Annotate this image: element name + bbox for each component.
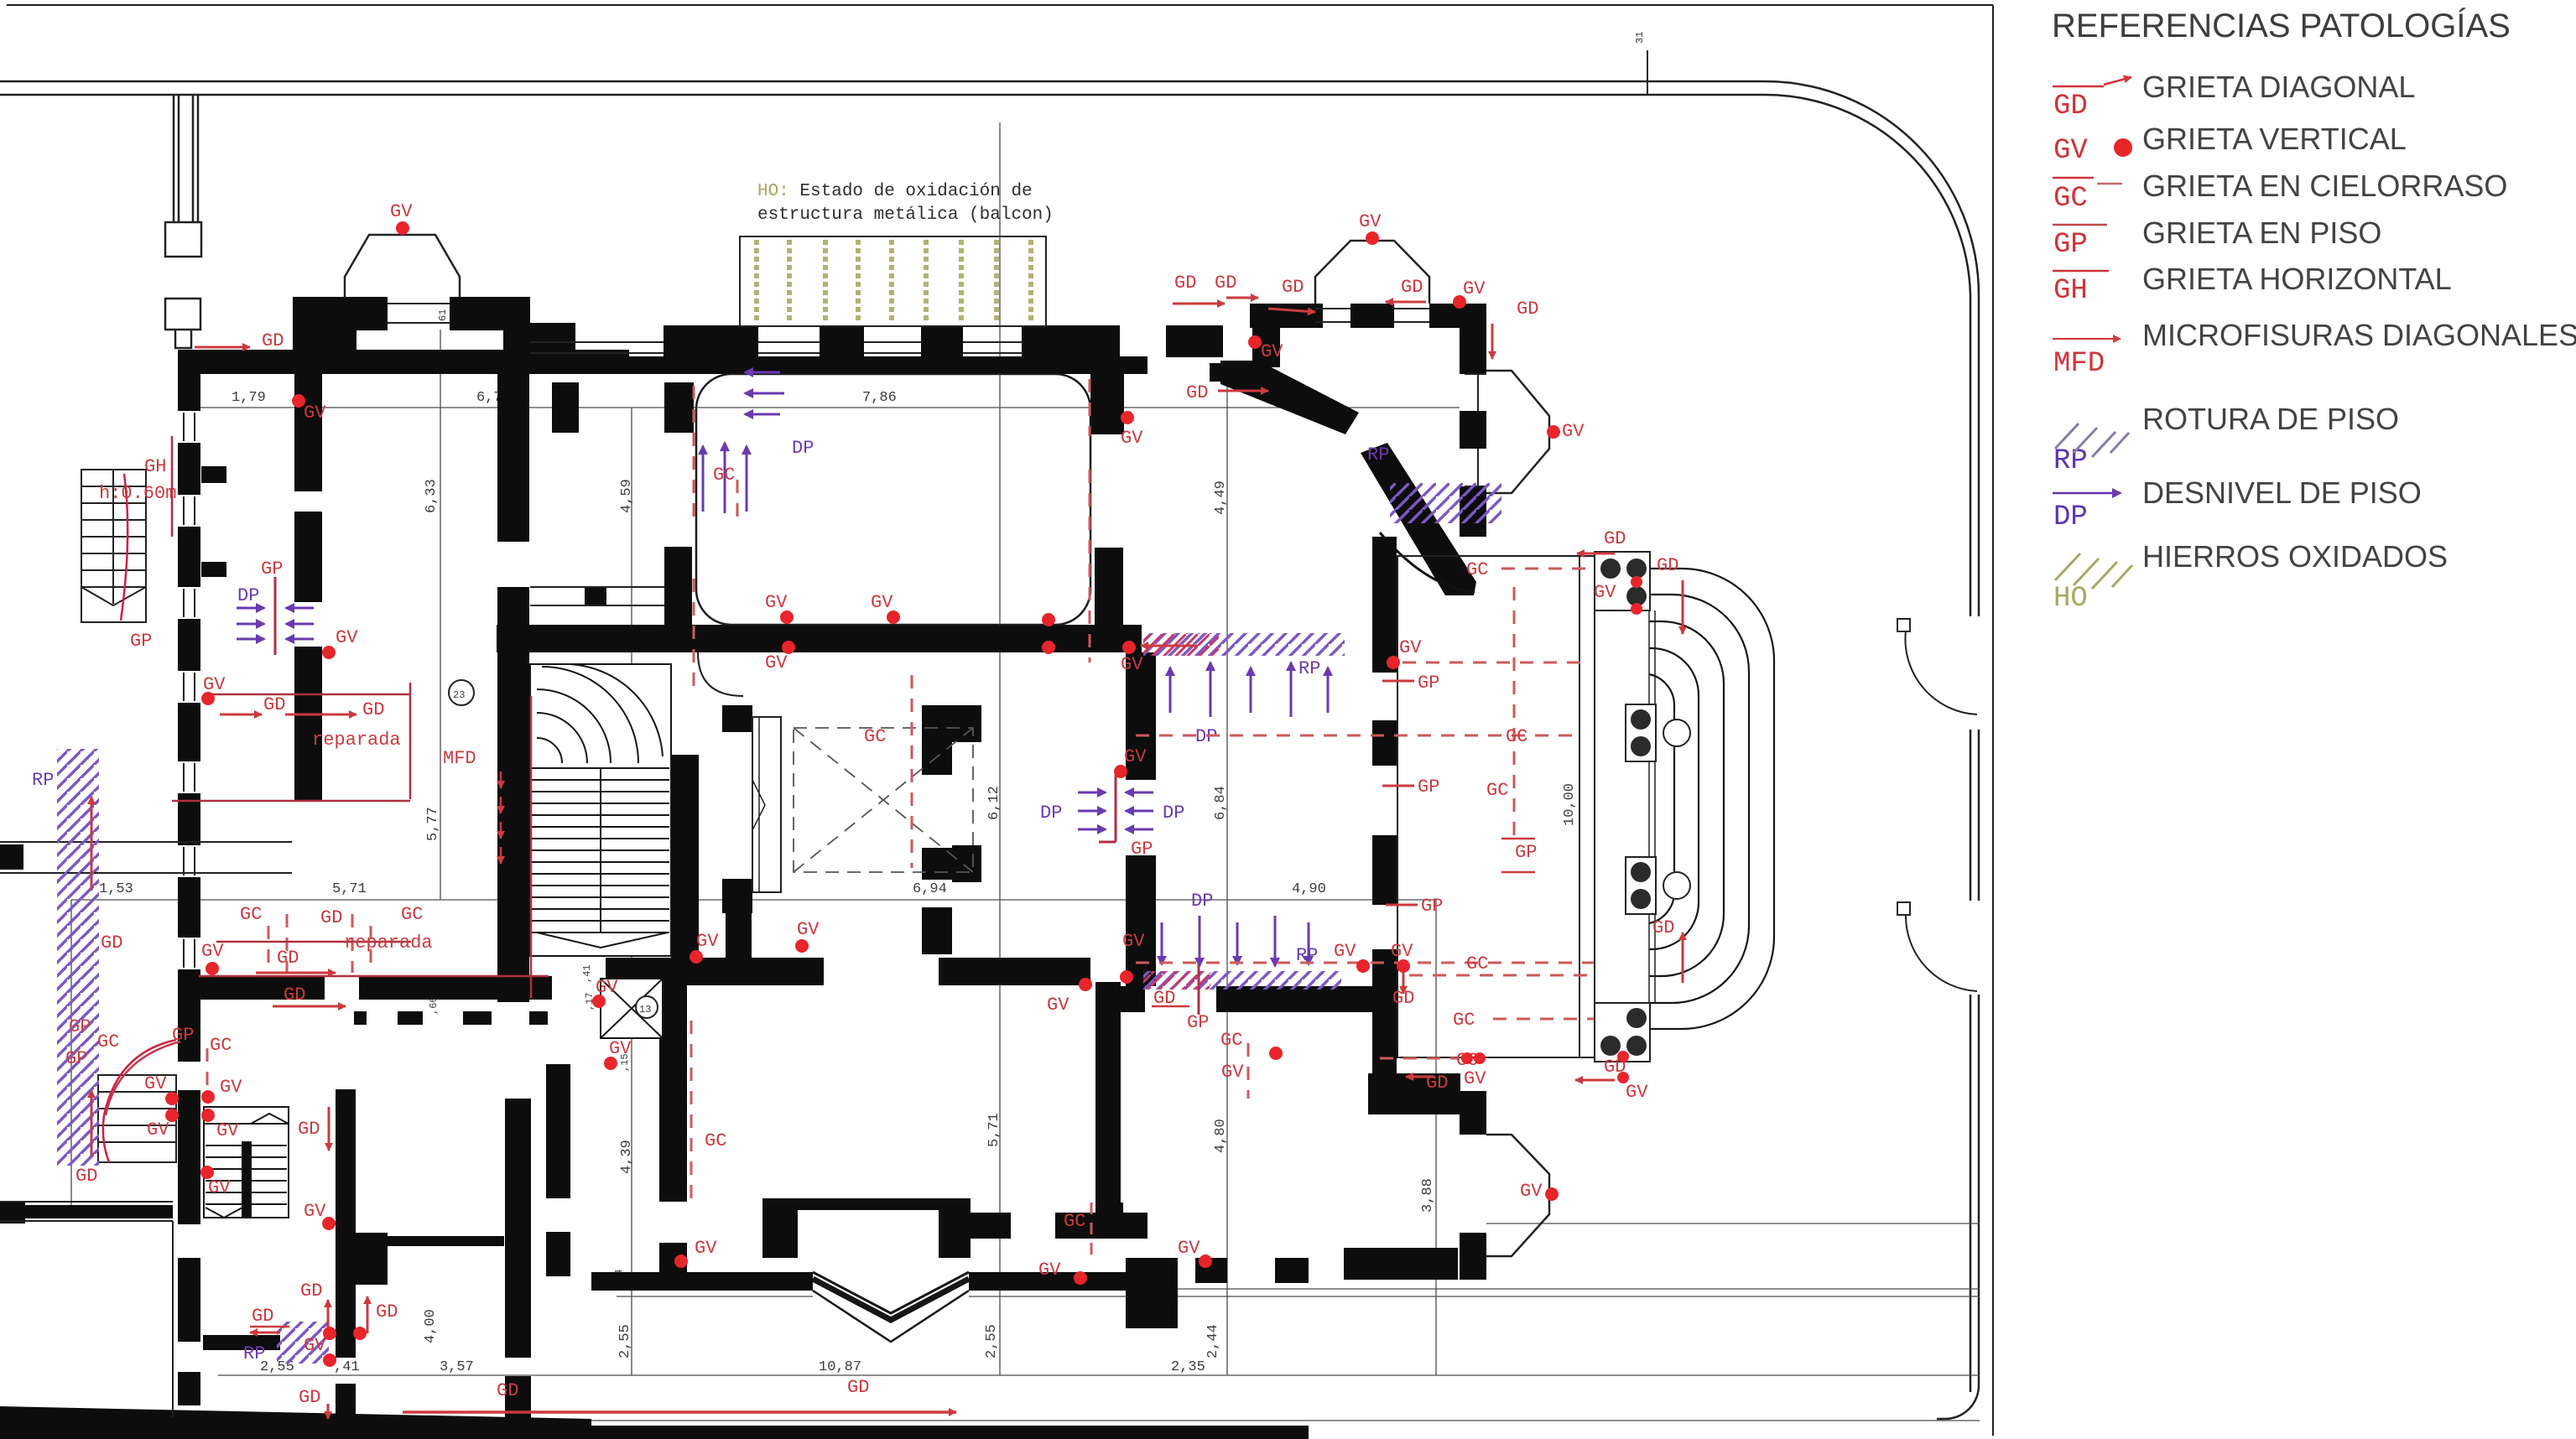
svg-text:GP: GP <box>1418 777 1439 797</box>
svg-text:GD: GD <box>2053 91 2088 122</box>
svg-text:31: 31 <box>1634 32 1646 44</box>
svg-text:4,39: 4,39 <box>619 1140 635 1174</box>
svg-text:GC: GC <box>864 726 886 747</box>
svg-text:GV: GV <box>2053 135 2088 167</box>
svg-text:GD: GD <box>1215 273 1236 294</box>
svg-text:GH: GH <box>2053 275 2088 307</box>
svg-text:RP: RP <box>1298 658 1320 679</box>
svg-text:DP: DP <box>792 438 814 459</box>
svg-text:GC: GC <box>210 1035 232 1056</box>
svg-text:GP: GP <box>2053 229 2088 261</box>
svg-text:GV: GV <box>208 1177 231 1198</box>
svg-text:10,87: 10,87 <box>819 1359 861 1375</box>
svg-text:GC: GC <box>713 465 735 486</box>
svg-text:GD: GD <box>1282 277 1304 298</box>
svg-text:GC: GC <box>1453 1010 1475 1031</box>
svg-text:GD: GD <box>1604 528 1626 549</box>
svg-text:GV: GV <box>696 931 719 952</box>
svg-text:GD: GD <box>497 1380 518 1401</box>
svg-text:4,59: 4,59 <box>619 479 635 513</box>
svg-text:GV: GV <box>1047 995 1069 1016</box>
svg-text:GC: GC <box>401 904 423 925</box>
svg-text:DP: DP <box>1191 891 1213 912</box>
svg-text:GD: GD <box>1174 273 1196 294</box>
svg-text:GV: GV <box>1221 1062 1244 1083</box>
svg-text:GD: GD <box>101 932 122 953</box>
svg-text:GV: GV <box>216 1120 239 1141</box>
svg-text:GV: GV <box>1261 341 1283 362</box>
svg-text:GC: GC <box>97 1031 119 1052</box>
svg-text:GV: GV <box>1626 1082 1648 1103</box>
svg-text:61: 61 <box>437 309 449 321</box>
svg-text:GV: GV <box>1124 746 1147 767</box>
svg-text:GC: GC <box>1064 1211 1085 1232</box>
svg-text:GV: GV <box>304 1201 326 1222</box>
svg-text:GV: GV <box>695 1238 717 1259</box>
svg-text:HO: Estado de oxidación de: HO: Estado de oxidación de <box>757 182 1033 201</box>
svg-text:GV: GV <box>1391 941 1413 962</box>
svg-text:4,80: 4,80 <box>1213 1119 1229 1153</box>
svg-text:GV: GV <box>1122 931 1145 952</box>
svg-text:GH: GH <box>144 456 166 477</box>
svg-text:DP: DP <box>2053 501 2088 533</box>
svg-text:GP: GP <box>1131 839 1153 860</box>
svg-text:h:0.60m: h:0.60m <box>99 483 176 504</box>
svg-text:3,57: 3,57 <box>440 1359 474 1375</box>
svg-text:RP: RP <box>1367 444 1389 465</box>
svg-text:GV: GV <box>1038 1260 1061 1281</box>
svg-text:23: 23 <box>453 689 465 701</box>
svg-text:GC: GC <box>1486 780 1508 801</box>
svg-text:MICROFISURAS DIAGONALES: MICROFISURAS DIAGONALES <box>2142 318 2576 352</box>
svg-text:GD: GD <box>299 1387 320 1408</box>
svg-text:GV: GV <box>1334 941 1356 962</box>
svg-text:GV: GV <box>1520 1181 1543 1202</box>
svg-text:GC: GC <box>705 1130 726 1151</box>
svg-text:reparada: reparada <box>344 932 433 953</box>
svg-text:GP: GP <box>261 558 283 579</box>
svg-text:4,49: 4,49 <box>1213 481 1229 515</box>
svg-text:RP: RP <box>32 770 54 791</box>
svg-text:HIERROS OXIDADOS: HIERROS OXIDADOS <box>2142 539 2448 574</box>
svg-text:REFERENCIAS PATOLOGÍAS: REFERENCIAS PATOLOGÍAS <box>2052 7 2511 44</box>
svg-text:2,35: 2,35 <box>1171 1359 1205 1375</box>
svg-text:reparada: reparada <box>312 730 401 751</box>
svg-text:GV: GV <box>304 1335 326 1356</box>
svg-text:GD: GD <box>362 699 384 720</box>
svg-text:RP: RP <box>2053 445 2088 477</box>
svg-text:3,88: 3,88 <box>1420 1178 1436 1213</box>
svg-text:4,90: 4,90 <box>1292 881 1326 897</box>
svg-text:GD: GD <box>263 694 285 715</box>
svg-text:,41: ,41 <box>334 1359 360 1375</box>
svg-text:GC: GC <box>1466 559 1488 580</box>
svg-text:RP: RP <box>243 1343 265 1364</box>
svg-text:GRIETA EN CIELORRASO: GRIETA EN CIELORRASO <box>2142 169 2507 203</box>
svg-text:GP: GP <box>1515 842 1537 863</box>
svg-text:GC: GC <box>1466 953 1488 974</box>
svg-text:MFD: MFD <box>443 748 476 769</box>
svg-text:GV: GV <box>1359 211 1382 232</box>
svg-text:5,71: 5,71 <box>332 881 367 897</box>
svg-text:1,79: 1,79 <box>232 390 266 406</box>
svg-text:GD: GD <box>376 1301 398 1322</box>
svg-text:GP: GP <box>1187 1012 1209 1033</box>
svg-text:GV: GV <box>765 592 788 613</box>
svg-text:5,77: 5,77 <box>425 807 441 841</box>
svg-text:GD: GD <box>300 1281 322 1301</box>
svg-text:GV: GV <box>1562 421 1585 442</box>
svg-text:DESNIVEL DE PISO: DESNIVEL DE PISO <box>2142 475 2422 510</box>
svg-text:,41: ,41 <box>581 964 593 983</box>
svg-text:GD: GD <box>1517 299 1538 319</box>
svg-text:GD: GD <box>262 330 284 351</box>
svg-text:6,94: 6,94 <box>913 881 947 897</box>
svg-text:13: 13 <box>639 1004 651 1016</box>
svg-text:GD: GD <box>277 948 299 969</box>
svg-text:2,44: 2,44 <box>1205 1324 1221 1358</box>
svg-text:GRIETA DIAGONAL: GRIETA DIAGONAL <box>2142 70 2415 104</box>
svg-text:GV: GV <box>1399 637 1422 658</box>
svg-text:GRIETA EN PISO: GRIETA EN PISO <box>2142 216 2381 250</box>
svg-text:2,55: 2,55 <box>617 1324 633 1358</box>
svg-text:GD: GD <box>1657 555 1678 576</box>
svg-text:GV: GV <box>1178 1238 1200 1259</box>
svg-text:GV: GV <box>201 941 224 962</box>
svg-text:GRIETA HORIZONTAL: GRIETA HORIZONTAL <box>2142 262 2452 296</box>
svg-text:GV: GV <box>797 919 820 940</box>
svg-text:GP: GP <box>130 631 152 652</box>
svg-text:GD: GD <box>320 907 342 928</box>
svg-text:10,00: 10,00 <box>1562 783 1578 826</box>
svg-text:GC: GC <box>2053 183 2088 215</box>
svg-text:GC: GC <box>1506 726 1527 747</box>
svg-text:GD: GD <box>75 1166 97 1187</box>
svg-text:GV: GV <box>304 403 326 423</box>
svg-text:GD: GD <box>847 1377 869 1398</box>
svg-text:GV: GV <box>1594 582 1616 603</box>
svg-text:GP: GP <box>69 1016 91 1037</box>
svg-text:GV: GV <box>390 201 413 222</box>
svg-text:GV: GV <box>1121 428 1143 449</box>
svg-text:GP: GP <box>1421 896 1443 917</box>
svg-text:1,53: 1,53 <box>99 881 133 897</box>
svg-text:6,12: 6,12 <box>986 786 1002 820</box>
svg-text:GD: GD <box>298 1119 320 1140</box>
svg-text:GV: GV <box>144 1073 167 1094</box>
svg-text:GV: GV <box>1464 1068 1486 1089</box>
svg-text:GRIETA VERTICAL: GRIETA VERTICAL <box>2142 122 2407 156</box>
svg-text:7,86: 7,86 <box>862 390 897 406</box>
svg-text:GP: GP <box>1418 673 1439 694</box>
svg-text:5,71: 5,71 <box>986 1113 1002 1147</box>
svg-text:GV: GV <box>147 1120 169 1140</box>
svg-text:6,33: 6,33 <box>424 479 440 513</box>
svg-text:GD: GD <box>284 984 305 1005</box>
svg-text:ROTURA DE PISO: ROTURA DE PISO <box>2142 402 2399 436</box>
svg-text:GD: GD <box>1186 382 1208 403</box>
svg-text:4,00: 4,00 <box>423 1309 439 1343</box>
svg-text:estructura metálica (balcon): estructura metálica (balcon) <box>757 205 1054 225</box>
svg-text:2,55: 2,55 <box>984 1324 1000 1358</box>
svg-text:DP: DP <box>1040 803 1062 823</box>
svg-text:GV: GV <box>220 1077 242 1098</box>
svg-text:GV: GV <box>1121 654 1143 675</box>
svg-text:GV: GV <box>1463 278 1486 299</box>
svg-text:GV: GV <box>871 592 893 613</box>
svg-text:GC: GC <box>1220 1030 1242 1051</box>
svg-text:GP: GP <box>65 1048 87 1069</box>
svg-text:GD: GD <box>252 1306 273 1327</box>
svg-text:HO: HO <box>2053 583 2088 615</box>
svg-text:GD: GD <box>1652 917 1674 938</box>
svg-text:MFD: MFD <box>2053 348 2105 380</box>
svg-text:GC: GC <box>240 904 262 925</box>
svg-text:DP: DP <box>1163 803 1184 823</box>
svg-text:GV: GV <box>609 1038 632 1059</box>
svg-text:6,84: 6,84 <box>1213 786 1229 820</box>
svg-text:DP: DP <box>237 585 259 606</box>
svg-text:GV: GV <box>336 627 358 648</box>
svg-text:GD: GD <box>1401 277 1423 298</box>
svg-text:GV: GV <box>765 652 788 673</box>
